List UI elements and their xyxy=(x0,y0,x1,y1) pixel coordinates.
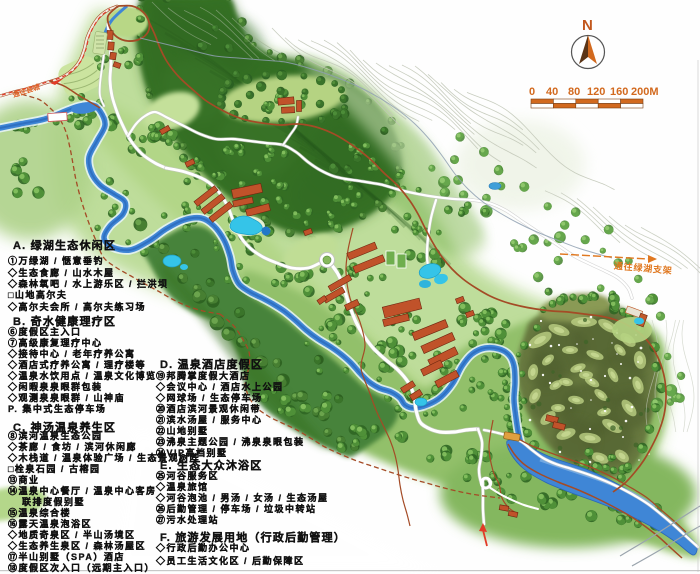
svg-text:0: 0 xyxy=(529,86,535,98)
svg-text:N: N xyxy=(582,17,593,34)
svg-text:120: 120 xyxy=(587,86,605,98)
svg-text:160: 160 xyxy=(610,86,628,98)
svg-text:80: 80 xyxy=(568,86,580,98)
svg-text:40: 40 xyxy=(546,86,558,98)
svg-text:200M: 200M xyxy=(631,86,659,98)
